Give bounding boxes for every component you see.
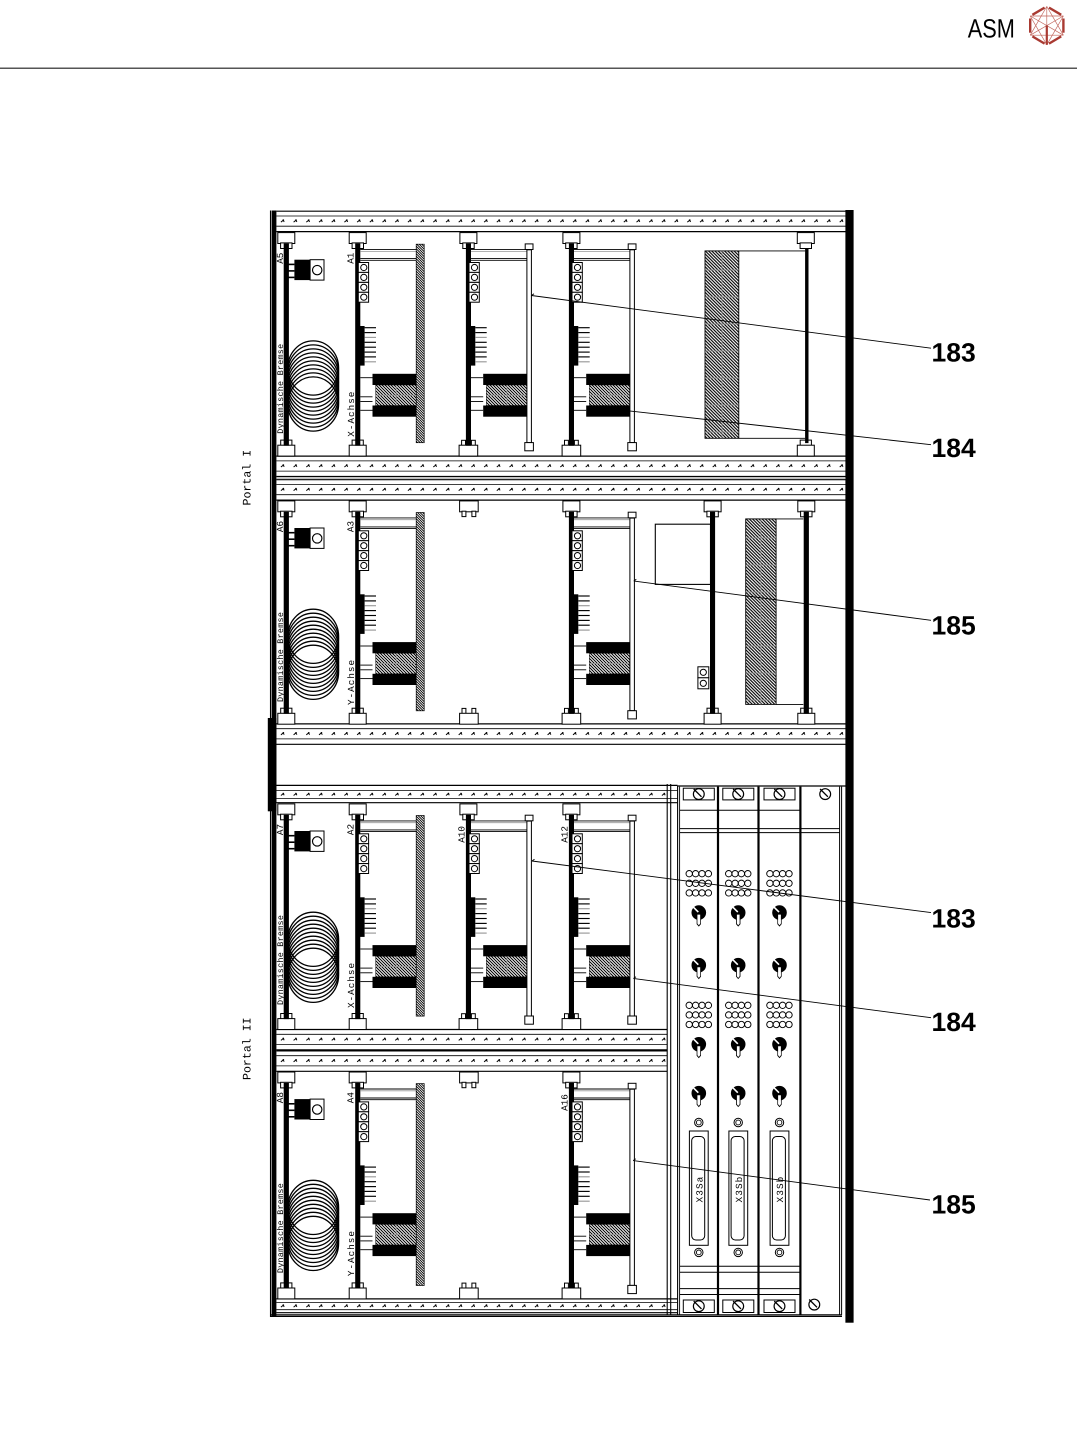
svg-text:Portal I: Portal I xyxy=(242,450,255,506)
svg-text:183: 183 xyxy=(932,338,976,368)
svg-text:A4: A4 xyxy=(346,1092,357,1104)
svg-text:Dynamische Bremse: Dynamische Bremse xyxy=(276,344,286,434)
svg-text:A16: A16 xyxy=(559,1094,570,1111)
svg-text:184: 184 xyxy=(932,433,976,463)
svg-text:Dynamische Bremse: Dynamische Bremse xyxy=(276,612,286,702)
svg-text:X3Sa: X3Sa xyxy=(694,1176,705,1203)
svg-text:A3: A3 xyxy=(346,521,357,532)
svg-text:Y-Achse: Y-Achse xyxy=(346,659,357,705)
svg-text:A5: A5 xyxy=(275,253,286,264)
svg-text:185: 185 xyxy=(932,611,976,641)
svg-text:A12: A12 xyxy=(559,826,570,843)
svg-text:A8: A8 xyxy=(275,1092,286,1103)
svg-text:Dynamische Bremse: Dynamische Bremse xyxy=(276,1183,286,1273)
svg-text:A10: A10 xyxy=(456,826,467,843)
svg-text:183: 183 xyxy=(932,904,976,934)
svg-text:Portal II: Portal II xyxy=(242,1017,255,1080)
svg-text:X3Sb: X3Sb xyxy=(734,1176,745,1203)
svg-text:X-Achse: X-Achse xyxy=(346,391,357,437)
svg-text:A6: A6 xyxy=(275,521,286,532)
svg-text:Y-Achse: Y-Achse xyxy=(346,1230,357,1276)
svg-text:X-Achse: X-Achse xyxy=(346,962,357,1008)
svg-text:A7: A7 xyxy=(275,824,286,835)
svg-text:A1: A1 xyxy=(346,252,357,264)
svg-text:184: 184 xyxy=(932,1007,976,1037)
svg-text:185: 185 xyxy=(932,1190,976,1220)
svg-text:Dynamische Bremse: Dynamische Bremse xyxy=(276,915,286,1005)
svg-text:ASM: ASM xyxy=(968,14,1015,44)
svg-text:A2: A2 xyxy=(346,824,357,835)
